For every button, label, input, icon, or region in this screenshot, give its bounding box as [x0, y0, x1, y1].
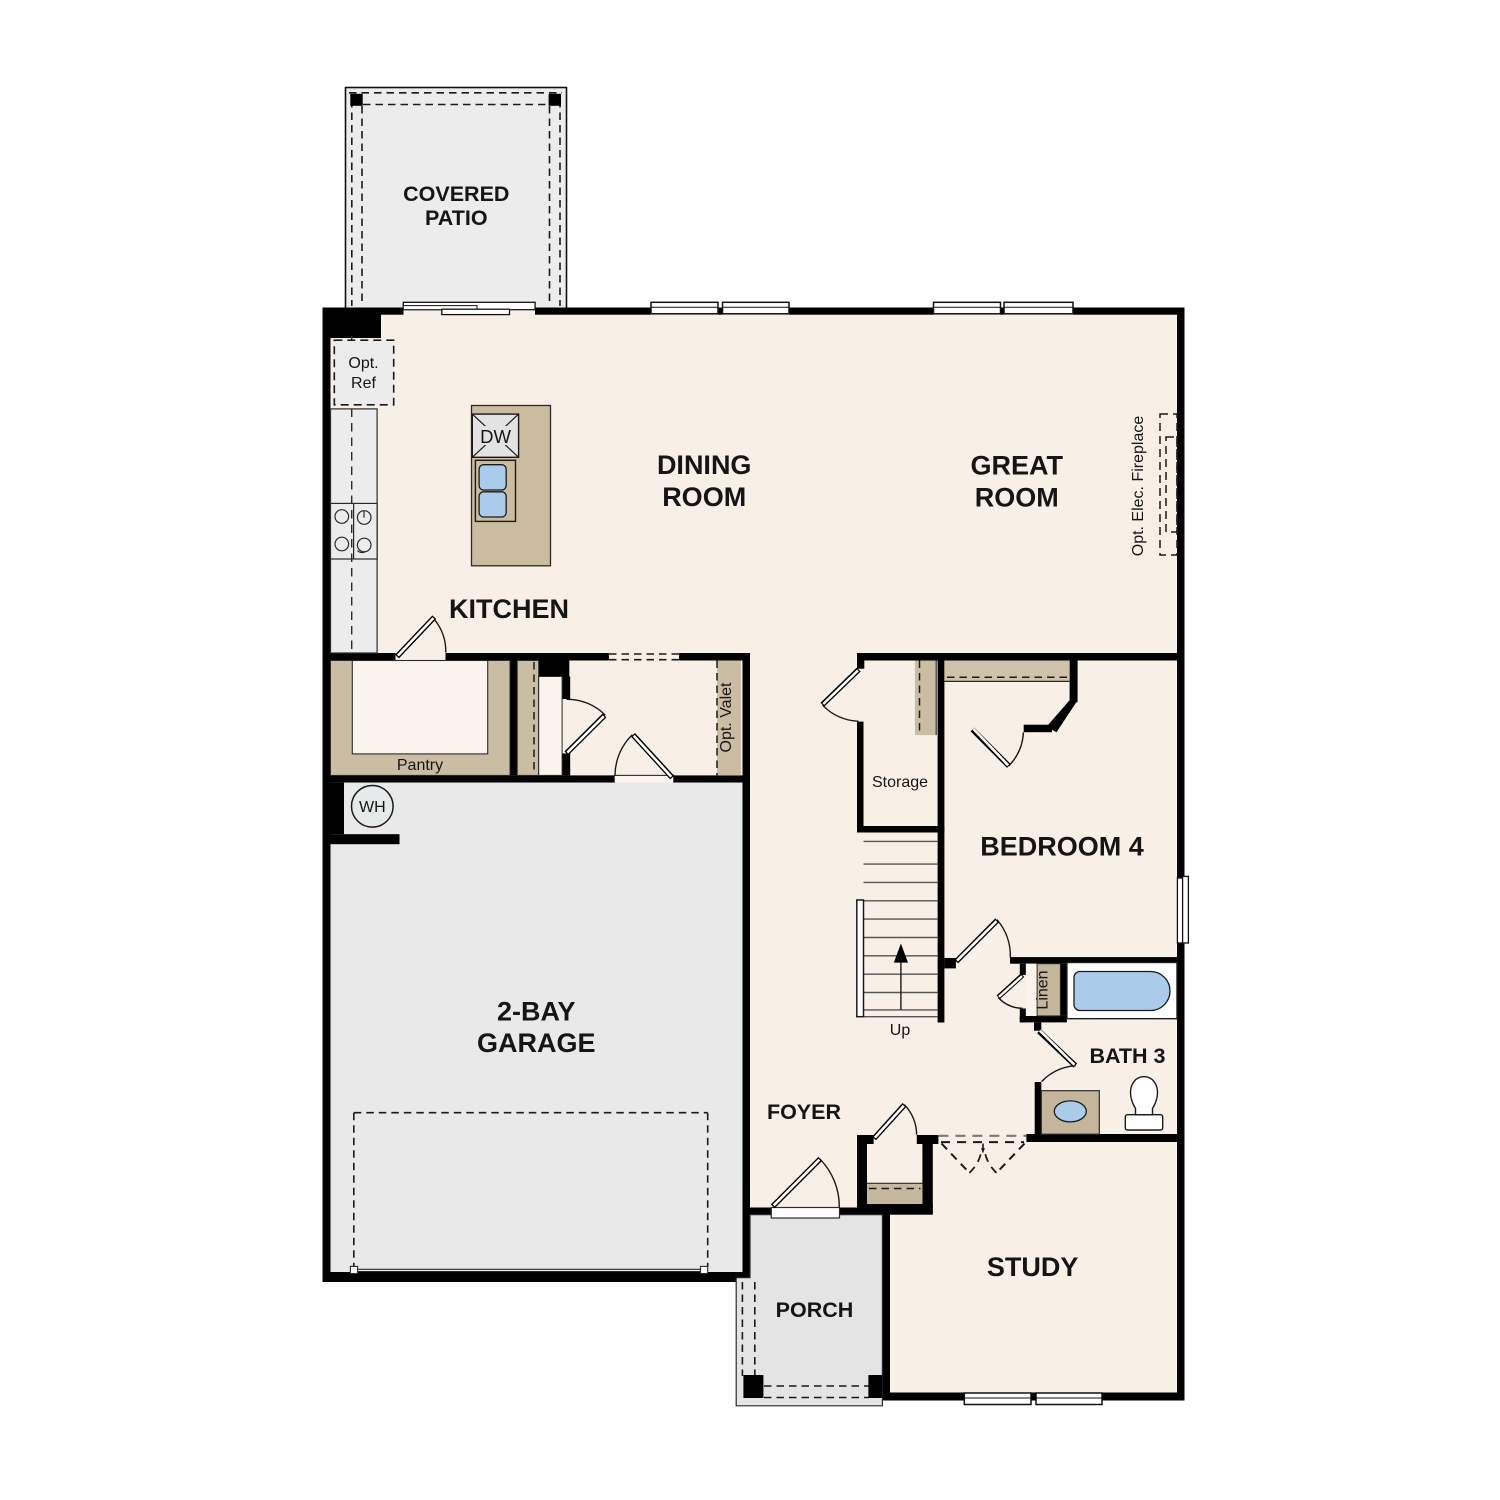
- svg-text:PATIO: PATIO: [425, 206, 488, 230]
- svg-text:Opt. Elec. Fireplace: Opt. Elec. Fireplace: [1130, 416, 1147, 557]
- svg-text:BATH 3: BATH 3: [1089, 1044, 1165, 1068]
- svg-text:FOYER: FOYER: [767, 1100, 842, 1124]
- svg-text:Opt.: Opt.: [348, 355, 378, 372]
- svg-text:2-BAY: 2-BAY: [497, 996, 576, 1026]
- svg-text:STUDY: STUDY: [987, 1252, 1079, 1282]
- svg-text:KITCHEN: KITCHEN: [449, 594, 569, 624]
- svg-text:Storage: Storage: [872, 774, 928, 791]
- svg-text:PORCH: PORCH: [776, 1298, 854, 1322]
- svg-text:DW: DW: [480, 426, 511, 447]
- svg-text:Up: Up: [890, 1022, 911, 1039]
- svg-text:Opt. Valet: Opt. Valet: [718, 682, 735, 753]
- svg-text:BEDROOM 4: BEDROOM 4: [980, 832, 1144, 862]
- svg-text:WH: WH: [359, 799, 386, 816]
- svg-text:ROOM: ROOM: [662, 482, 746, 512]
- svg-text:Linen: Linen: [1035, 970, 1052, 1009]
- svg-text:DINING: DINING: [657, 450, 752, 480]
- svg-text:Pantry: Pantry: [397, 757, 443, 774]
- svg-text:ROOM: ROOM: [975, 482, 1059, 512]
- svg-text:GREAT: GREAT: [971, 451, 1064, 481]
- svg-text:COVERED: COVERED: [403, 182, 509, 206]
- svg-text:GARAGE: GARAGE: [477, 1028, 596, 1058]
- svg-text:Ref: Ref: [351, 375, 376, 392]
